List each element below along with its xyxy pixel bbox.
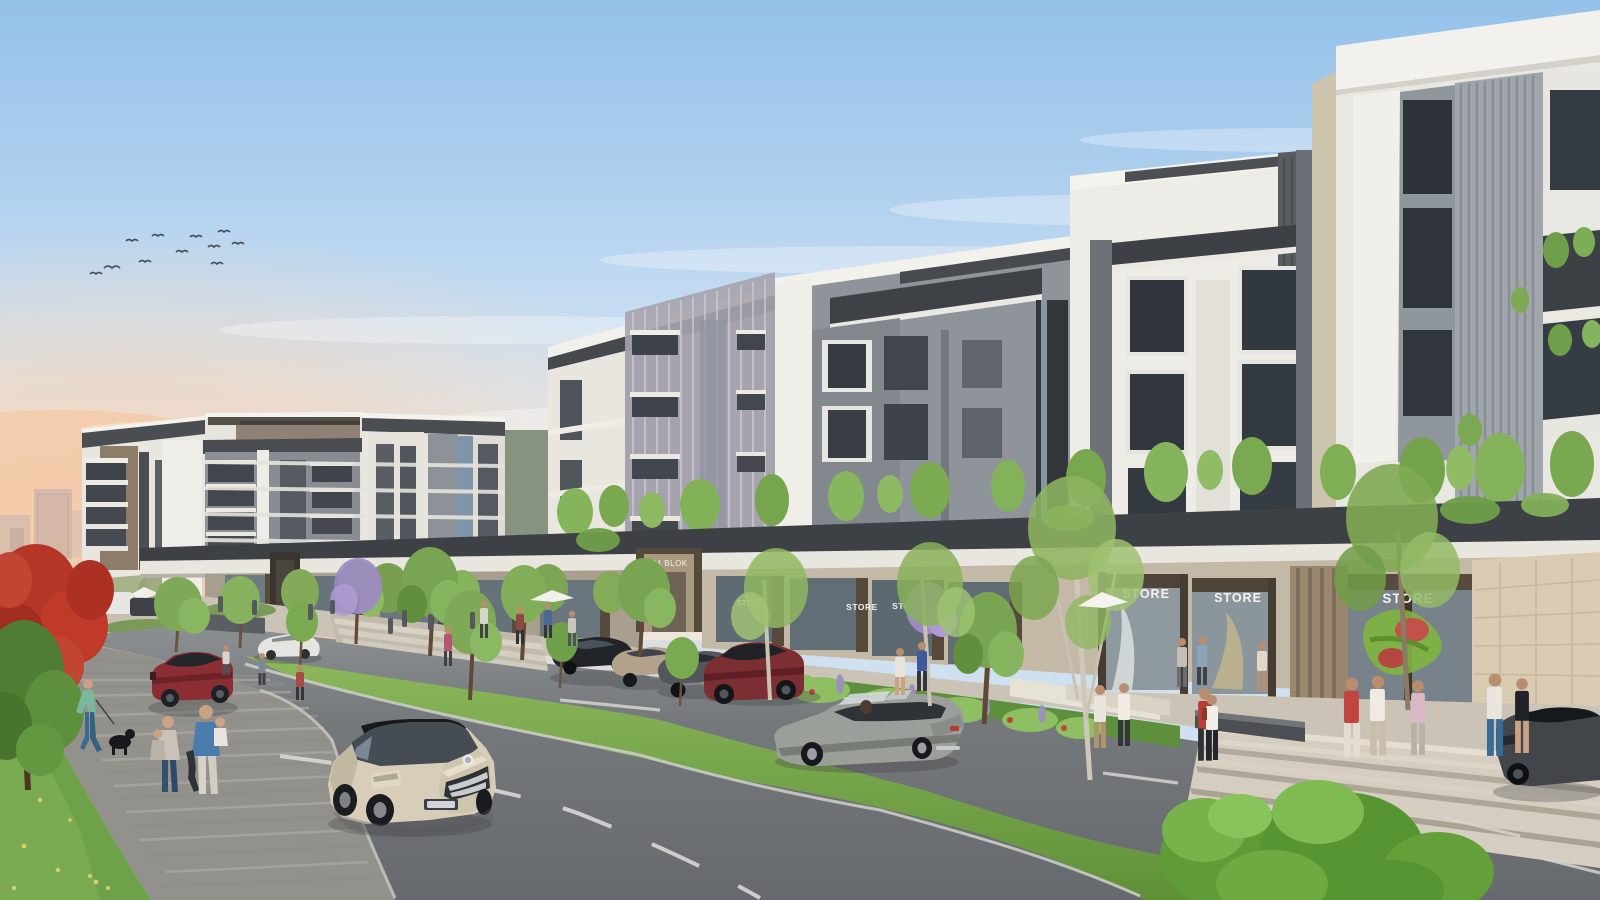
svg-text:STORE: STORE [846,602,878,612]
svg-text:STORE: STORE [1214,591,1262,605]
